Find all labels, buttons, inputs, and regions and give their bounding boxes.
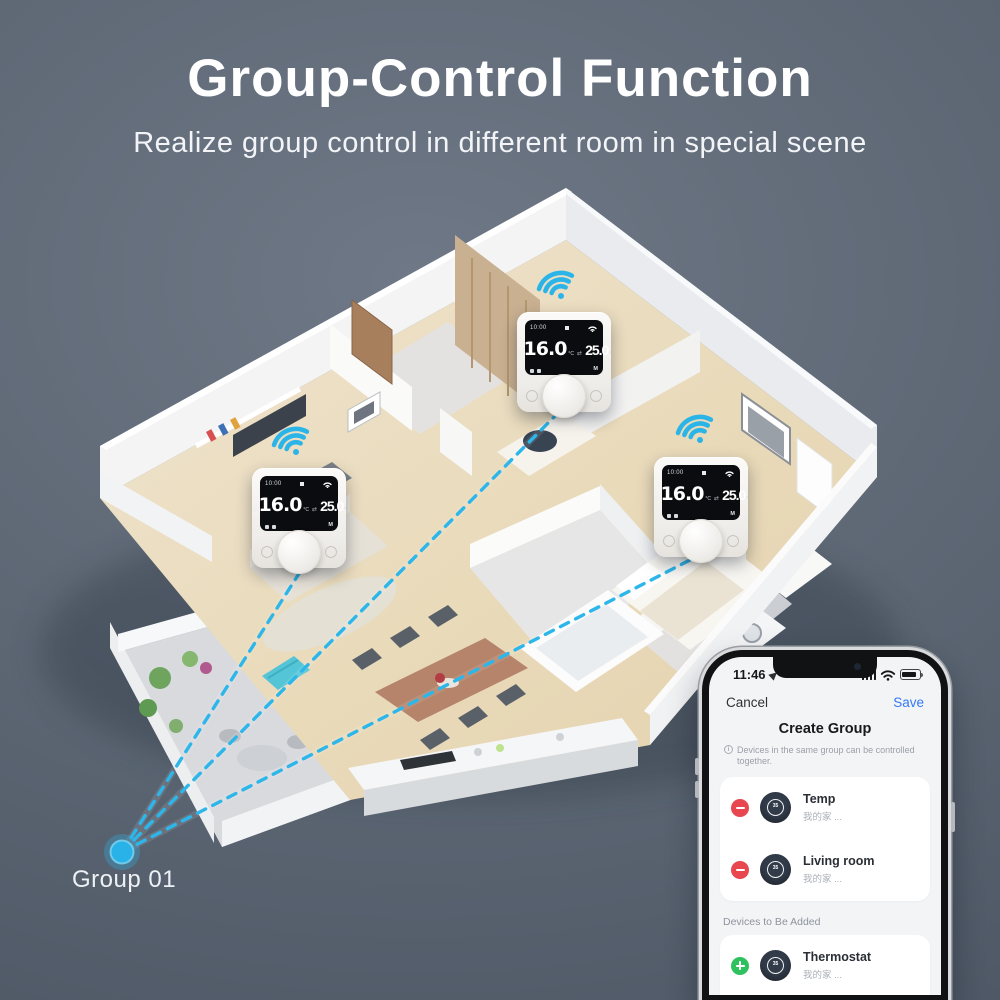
manual-mode-icon: M bbox=[730, 511, 735, 517]
snowflake-icon bbox=[265, 525, 269, 529]
list-item[interactable]: 35 Thermostat 我的家 ... bbox=[731, 950, 919, 981]
thermostat-right-button bbox=[727, 535, 739, 547]
snowflake-icon bbox=[530, 369, 534, 373]
transfer-icon: ⇄ bbox=[577, 350, 582, 357]
page-title: Group-Control Function bbox=[0, 48, 1000, 109]
thermostat-dial bbox=[277, 530, 321, 574]
phone-mockup: 11:46 Cancel Save Create Group i Devices… bbox=[702, 650, 948, 1000]
devices-to-add-label: Devices to Be Added bbox=[723, 916, 927, 928]
lock-icon bbox=[537, 369, 541, 373]
volume-down-button bbox=[695, 781, 699, 798]
device-avatar: 35 bbox=[760, 950, 791, 981]
wifi-icon bbox=[724, 469, 735, 477]
thermostat-device-bedroom: 10:00 ⌂ 16.0 °C ⇄ 25.0 ° M bbox=[517, 312, 611, 412]
info-note: i Devices in the same group can be contr… bbox=[709, 737, 941, 767]
group-dot bbox=[104, 834, 140, 870]
device-location: 我的家 ... bbox=[803, 809, 842, 823]
poster-canvas: Group-Control Function Realize group con… bbox=[0, 0, 1000, 1000]
manual-mode-icon: M bbox=[328, 522, 333, 528]
device-location: 我的家 ... bbox=[803, 967, 871, 981]
page-subtitle: Realize group control in different room … bbox=[0, 127, 1000, 160]
thermostat-time: 10:00 bbox=[265, 481, 282, 487]
thermostat-right-button bbox=[325, 546, 337, 558]
cancel-button[interactable]: Cancel bbox=[726, 695, 768, 710]
group-label: Group 01 bbox=[72, 866, 176, 894]
remove-device-button[interactable] bbox=[731, 799, 749, 817]
device-name: Temp bbox=[803, 792, 842, 806]
mode-square-icon bbox=[565, 326, 569, 330]
transfer-icon: ⇄ bbox=[714, 495, 719, 502]
device-location: 我的家 ... bbox=[803, 871, 875, 885]
device-name: Living room bbox=[803, 854, 875, 868]
thermostat-screen: 10:00 ⌂ 16.0 °C ⇄ 25.0 ° M bbox=[525, 320, 603, 375]
thermostat-dial bbox=[679, 519, 723, 563]
balcony-plant bbox=[182, 651, 198, 667]
thermostat-screen: 10:00 ⌂ 16.0 °C ⇄ 25.0 ° M bbox=[662, 465, 740, 520]
thermostat-screen: 10:00 ⌂ 16.0 °C ⇄ 25.0 ° M bbox=[260, 476, 338, 531]
status-time: 11:46 bbox=[733, 667, 766, 682]
thermostat-dial bbox=[542, 374, 586, 418]
devices-to-add-card: 35 Thermostat 我的家 ... bbox=[720, 935, 930, 995]
home-icon: ⌂ bbox=[517, 348, 522, 357]
create-group-title: Create Group bbox=[709, 721, 941, 737]
balcony-plant bbox=[169, 719, 183, 733]
save-button[interactable]: Save bbox=[893, 695, 924, 710]
thermostat-device-living-room: 10:00 ⌂ 16.0 °C ⇄ 25.0 ° M bbox=[252, 468, 346, 568]
balcony-plant bbox=[200, 662, 212, 674]
power-button bbox=[951, 802, 955, 832]
list-item[interactable]: 35 Living room 我的家 ... bbox=[731, 854, 919, 885]
info-icon: i bbox=[724, 745, 733, 754]
snowflake-icon bbox=[667, 514, 671, 518]
phone-screen: 11:46 Cancel Save Create Group i Devices… bbox=[709, 657, 941, 995]
device-name: Thermostat bbox=[803, 950, 871, 964]
home-icon: ⌂ bbox=[654, 493, 659, 502]
group-devices-card: 35 Temp 我的家 ... 35 Living room 我的家 ... bbox=[720, 777, 930, 901]
phone-notch bbox=[773, 657, 877, 678]
thermostat-left-button bbox=[526, 390, 538, 402]
current-temp: 16.0 bbox=[259, 494, 302, 516]
wifi-icon bbox=[880, 669, 896, 681]
thermostat-right-button bbox=[590, 390, 602, 402]
add-device-button[interactable] bbox=[731, 957, 749, 975]
thermostat-left-button bbox=[261, 546, 273, 558]
manual-mode-icon: M bbox=[593, 366, 598, 372]
header: Group-Control Function Realize group con… bbox=[0, 48, 1000, 160]
nav-bar: Cancel Save bbox=[709, 683, 941, 710]
remove-device-button[interactable] bbox=[731, 861, 749, 879]
balcony-plant bbox=[139, 699, 157, 717]
camera-icon bbox=[854, 663, 861, 670]
mode-square-icon bbox=[702, 471, 706, 475]
device-avatar: 35 bbox=[760, 854, 791, 885]
target-temp: 25.0 bbox=[320, 498, 343, 514]
mode-square-icon bbox=[300, 482, 304, 486]
thermostat-device-right-bedroom: 10:00 ⌂ 16.0 °C ⇄ 25.0 ° M bbox=[654, 457, 748, 557]
list-item[interactable]: 35 Temp 我的家 ... bbox=[731, 792, 919, 823]
wifi-icon bbox=[322, 480, 333, 488]
volume-up-button bbox=[695, 758, 699, 775]
thermostat-left-button bbox=[663, 535, 675, 547]
device-avatar: 35 bbox=[760, 792, 791, 823]
info-text: Devices in the same group can be control… bbox=[737, 745, 928, 767]
balcony-plant bbox=[149, 667, 171, 689]
wifi-icon bbox=[587, 324, 598, 332]
battery-icon bbox=[900, 669, 921, 680]
lock-icon bbox=[272, 525, 276, 529]
home-icon: ⌂ bbox=[252, 504, 257, 513]
transfer-icon: ⇄ bbox=[312, 506, 317, 513]
lock-icon bbox=[674, 514, 678, 518]
